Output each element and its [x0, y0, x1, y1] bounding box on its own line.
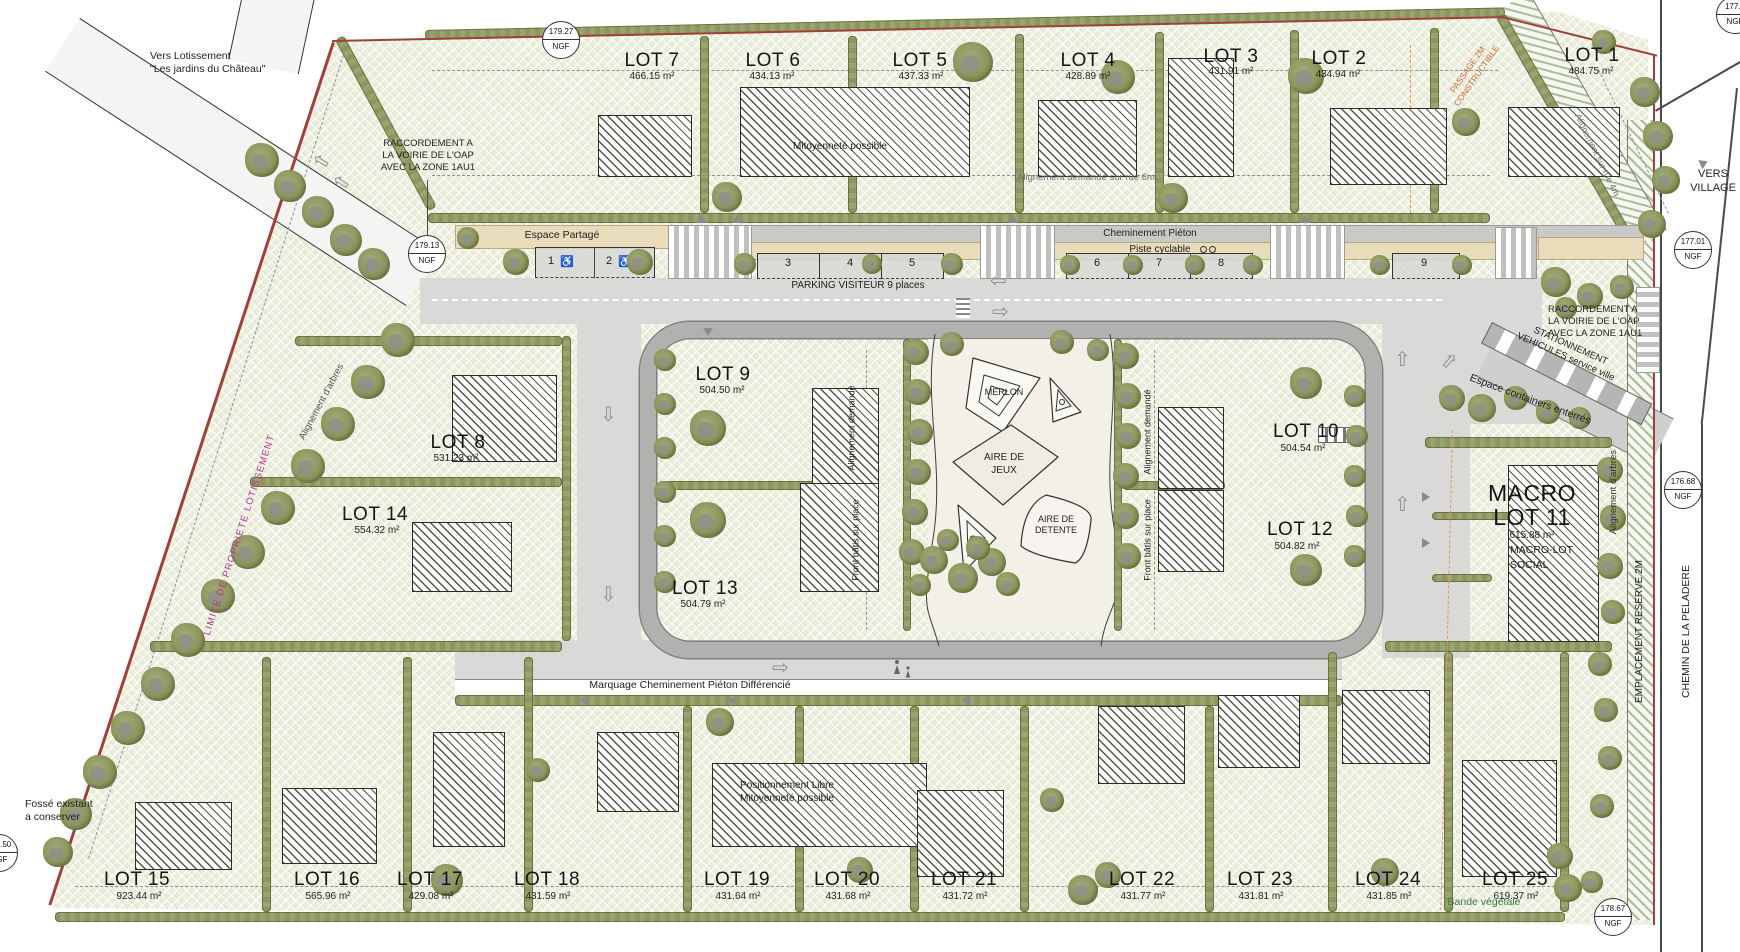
lot-label: LOT 1 — [1565, 45, 1620, 67]
tree-icon — [1050, 330, 1074, 354]
tree-icon — [330, 224, 362, 256]
building-lot21 — [917, 790, 1004, 877]
fosse-label: Fossé existant a conserver — [25, 798, 93, 824]
lot-label: LOT 18 — [514, 869, 580, 891]
hedge — [562, 336, 571, 641]
raccordement-right-label: RACCORDEMENT A LA VOIRIE DE L'OAP AVEC L… — [1548, 304, 1642, 340]
lot-area: 466.15 m² — [629, 71, 674, 82]
tree-icon — [1652, 166, 1680, 194]
tree-icon — [941, 253, 963, 275]
tree-icon — [358, 248, 390, 280]
building-lot15 — [135, 802, 232, 870]
tree-icon — [1468, 394, 1496, 422]
building-lot16 — [282, 788, 377, 864]
lot-area: 431.68 m² — [825, 891, 870, 902]
emplacement-reserve-label: EMPLACEMENT RESERVE 2M — [1634, 560, 1645, 703]
lot-label: LOT 2 — [1312, 48, 1367, 70]
site-plan: LOT 7 466.15 m² LOT 6 434.13 m² LOT 5 43… — [0, 0, 1740, 952]
bande-vegetale-label: Bande végétale — [1448, 896, 1521, 909]
flow-arrow-icon — [1422, 492, 1430, 502]
lot-label: LOT 10 — [1273, 421, 1339, 443]
tree-icon — [1643, 121, 1673, 151]
tree-icon — [1113, 503, 1139, 529]
lot-area: 431.59 m² — [525, 891, 570, 902]
ngf-value: 178.67 — [1595, 899, 1631, 917]
pedestrian-icon — [894, 660, 900, 674]
lot-label: LOT 17 — [397, 869, 463, 891]
lot-label: LOT 3 — [1204, 46, 1259, 68]
shared-space-label: Espace Partagé — [525, 229, 600, 242]
aire-detente-line2: DETENTE — [1035, 525, 1077, 535]
tree-icon — [1087, 339, 1109, 361]
tree-icon — [907, 419, 933, 445]
bay-number: 9 — [1421, 257, 1427, 269]
lot-label: LOT 20 — [814, 869, 880, 891]
ngf-value: 177.01 — [1675, 232, 1711, 250]
pedestrian-path-label: Cheminement Piéton — [1103, 228, 1196, 241]
tree-icon — [690, 410, 726, 446]
lot-area: 431.64 m² — [715, 891, 760, 902]
tree-icon — [940, 332, 964, 356]
ngf-value: 181.50 — [0, 835, 17, 853]
tree-icon — [321, 407, 355, 441]
aire-detente-line1: AIRE DE — [1038, 514, 1074, 524]
bay-number: 7 — [1156, 257, 1162, 269]
raccordement-line2: LA VOIRIE DE L'OAP — [1548, 316, 1640, 327]
crossing-arrow-icon — [962, 698, 972, 706]
lot-area: 484.75 m² — [1568, 66, 1613, 77]
wheelchair-icon: ♿ — [560, 255, 574, 268]
ngf-unit: NGF — [1665, 490, 1701, 501]
lot-label: LOT 12 — [1267, 519, 1333, 541]
bay-number: 6 — [1094, 257, 1100, 269]
direction-arrow-icon: ⇩ — [600, 585, 617, 605]
direction-arrow-icon: ⇨ — [992, 302, 1009, 322]
lot-area: 504.82 m² — [1274, 541, 1319, 552]
lot-area: 431.85 m² — [1366, 891, 1411, 902]
macro-lot-label: MACRO — [1488, 480, 1576, 507]
hedge — [55, 912, 1565, 922]
hedge — [1015, 34, 1024, 213]
tree-icon — [1158, 183, 1188, 213]
tree-icon — [274, 170, 306, 202]
vers-lotissement-line2: "Les jardins du Château" — [150, 63, 265, 75]
tree-icon — [1588, 652, 1612, 676]
lot-area: 437.33 m² — [898, 71, 943, 82]
lot-label: LOT 5 — [893, 50, 948, 72]
macro-lot-label: LOT 11 — [1493, 504, 1571, 531]
main-road-centerline — [432, 299, 1442, 301]
tree-icon — [1243, 255, 1263, 275]
crossing-arrow-icon — [580, 698, 590, 706]
hedge — [700, 36, 709, 213]
tree-icon — [903, 339, 929, 365]
tree-icon — [862, 254, 882, 274]
hedge — [1425, 437, 1612, 448]
tree-icon — [171, 623, 205, 657]
tree-icon — [654, 393, 676, 415]
tree-icon — [381, 323, 415, 357]
building-lot12 — [1158, 490, 1224, 572]
lot-label: LOT 16 — [294, 869, 360, 891]
building-lot2 — [1330, 108, 1447, 185]
tree-icon — [1439, 385, 1465, 411]
aire-detente-label: AIRE DE DETENTE — [1035, 514, 1077, 537]
raccordement-line3: AVEC LA ZONE 1AU1 — [381, 162, 475, 173]
tree-icon — [1060, 255, 1080, 275]
lot-area: 431.91 m² — [1208, 66, 1253, 77]
bicycle-icon — [1200, 244, 1216, 253]
hedge — [262, 657, 271, 912]
lot-area: 923.44 m² — [116, 891, 161, 902]
tree-icon — [1185, 255, 1205, 275]
tree-icon — [1581, 871, 1603, 893]
ngf-value: 179.27 — [543, 22, 579, 40]
tree-icon — [1590, 794, 1614, 818]
alignement-demande-lot9: Alignement demandé — [846, 385, 857, 470]
crossing-arrow-icon — [1300, 215, 1310, 223]
left-loop-road — [577, 324, 641, 658]
fosse-line2: a conserver — [25, 811, 80, 823]
road-crossing-marks — [956, 298, 970, 318]
tree-icon — [1040, 788, 1064, 812]
tree-icon — [734, 253, 756, 275]
marquage-label: Marquage Cheminement Piéton Différencié — [589, 679, 790, 692]
bay-number: 3 — [785, 257, 791, 269]
ngf-value: 176.68 — [1665, 472, 1701, 490]
lot-area: 434.13 m² — [749, 71, 794, 82]
aire-jeux-label: AIRE DE JEUX — [984, 452, 1024, 477]
lot-label: LOT 14 — [342, 504, 408, 526]
ngf-unit: NGF — [409, 254, 445, 265]
tree-icon — [1344, 545, 1366, 567]
alignment-dashed-lot10 — [1154, 350, 1155, 630]
direction-arrow-icon: ⇦ — [990, 271, 1007, 291]
raccordement-leader-line — [427, 180, 428, 236]
tree-icon — [902, 499, 928, 525]
front-batis-lot13: Front bâtis sur place — [850, 499, 861, 581]
tree-icon — [1597, 553, 1623, 579]
lot-label: LOT 7 — [625, 50, 680, 72]
tree-icon — [905, 379, 931, 405]
tree-icon — [948, 563, 978, 593]
lot-label: LOT 24 — [1355, 869, 1421, 891]
ngf-unit: NGF — [543, 40, 579, 51]
lot-label: LOT 6 — [746, 50, 801, 72]
tree-icon — [1115, 543, 1141, 569]
raccordement-left-label: RACCORDEMENT A LA VOIRIE DE L'OAP AVEC L… — [381, 138, 475, 174]
lot-label: LOT 23 — [1227, 869, 1293, 891]
positionnement-line2: Mitoyenneté possible — [740, 793, 834, 804]
hedge — [1560, 652, 1569, 912]
tree-icon — [1115, 383, 1141, 409]
building-lot13 — [800, 483, 879, 592]
visitor-parking-label: PARKING VISITEUR 9 places — [791, 280, 924, 293]
hedge — [1385, 641, 1612, 652]
alignement-demande-lot10: Alignement demandé — [1142, 389, 1153, 474]
lot-area: 504.79 m² — [680, 599, 725, 610]
tree-icon — [1115, 423, 1141, 449]
ngf-marker: 177.01 NGF — [1674, 231, 1712, 269]
tree-icon — [627, 249, 653, 275]
bay-number: 1 — [548, 255, 554, 267]
lot-label: LOT 25 — [1482, 869, 1548, 891]
tree-icon — [1594, 698, 1618, 722]
direction-arrow-icon: ⇩ — [600, 405, 617, 425]
lot-area: 565.96 m² — [305, 891, 350, 902]
raccordement-line1: RACCORDEMENT A — [383, 138, 473, 149]
front-batis-lot12: Front bâtis sur place — [1142, 499, 1153, 581]
ngf-unit: NGF — [1675, 250, 1711, 261]
building-lot14 — [412, 522, 512, 592]
building-lot7 — [598, 115, 692, 177]
vers-village-line1: VERS — [1698, 168, 1728, 180]
tree-icon — [141, 667, 175, 701]
lot-label: LOT 4 — [1061, 50, 1116, 72]
crosswalk — [1495, 227, 1537, 279]
main-road — [420, 278, 1520, 324]
tree-icon — [1346, 425, 1368, 447]
tree-icon — [1541, 267, 1571, 297]
chemin-inner-line — [1701, 424, 1703, 952]
crossing-arrow-icon — [697, 215, 707, 223]
bay-number: 2 — [606, 255, 612, 267]
lot-label: LOT 15 — [104, 869, 170, 891]
merlon-label: MERLON — [985, 387, 1024, 398]
tree-icon — [654, 481, 676, 503]
tree-icon — [291, 449, 325, 483]
tree-icon — [1610, 275, 1634, 299]
lot-area: 504.54 m² — [1280, 443, 1325, 454]
lot-area: 504.50 m² — [699, 385, 744, 396]
tree-icon — [1344, 465, 1366, 487]
ngf-value: 177.3 — [1717, 0, 1740, 15]
tree-icon — [1630, 77, 1660, 107]
chemin-peladere-label: CHEMIN DE LA PELADERE — [1680, 565, 1692, 698]
alignement-arbres-right-label: Alignement d'arbres — [1608, 450, 1619, 534]
lot-area: 428.89 m² — [1065, 71, 1110, 82]
building-lot25 — [1462, 760, 1557, 877]
tree-icon — [1068, 875, 1098, 905]
tree-icon — [1290, 367, 1322, 399]
building-positionnement — [712, 763, 927, 847]
macro-lot-area: 615.88 m² — [1509, 530, 1554, 541]
tree-icon — [1346, 505, 1368, 527]
tree-icon — [905, 459, 931, 485]
lot-area: 431.81 m² — [1238, 891, 1283, 902]
tree-icon — [1344, 385, 1366, 407]
lot-area: 554.32 m² — [354, 525, 399, 536]
crossing-arrow-icon — [728, 698, 738, 706]
lot-label: LOT 13 — [672, 578, 738, 600]
building-lot22 — [1098, 706, 1185, 784]
tree-icon — [351, 365, 385, 399]
raccordement-line1: RACCORDEMENT A — [1548, 304, 1638, 315]
tree-icon — [83, 755, 117, 789]
direction-arrow-icon: ⇧ — [1394, 350, 1411, 370]
aire-jeux-line2: JEUX — [991, 465, 1017, 476]
tree-icon — [1123, 255, 1143, 275]
lot-label: LOT 19 — [704, 869, 770, 891]
ngf-marker: 181.50 NGF — [0, 834, 18, 872]
cycle-path-label: Piste cyclable — [1129, 244, 1190, 257]
lot-area: 434.94 m² — [1315, 69, 1360, 80]
ngf-value: 179.13 — [409, 236, 445, 254]
crossing-arrow-icon — [1008, 215, 1018, 223]
tree-icon — [654, 525, 676, 547]
tree-icon — [1598, 746, 1622, 770]
tree-icon — [245, 143, 279, 177]
vers-lotissement-line1: Vers Lotissement — [150, 50, 231, 62]
tree-icon — [457, 227, 479, 249]
tree-icon — [690, 502, 726, 538]
tree-icon — [1601, 600, 1625, 624]
building-lot24 — [1342, 690, 1430, 764]
right-loop-road — [1382, 324, 1470, 658]
tree-icon — [302, 196, 334, 228]
lot-label: LOT 8 — [431, 432, 486, 454]
crossing-arrow-icon — [732, 215, 742, 223]
tree-icon — [712, 182, 742, 212]
hedge — [1020, 706, 1029, 912]
lot-label: LOT 21 — [931, 869, 997, 891]
tree-icon — [1452, 255, 1472, 275]
lot-label: LOT 9 — [696, 364, 751, 386]
tree-icon — [111, 711, 145, 745]
tree-icon — [1290, 554, 1322, 586]
hedge — [1432, 574, 1492, 582]
hedge — [658, 481, 820, 490]
bay-number: 8 — [1218, 257, 1224, 269]
tree-icon — [706, 708, 734, 736]
ngf-marker: 176.68 NGF — [1664, 471, 1702, 509]
building-lot17 — [433, 732, 505, 847]
ngf-unit: NGF — [1595, 917, 1631, 928]
cycle-path-band-right — [1538, 237, 1644, 260]
ngf-unit: NGF — [0, 853, 17, 864]
tree-icon — [1370, 255, 1390, 275]
tree-icon — [654, 349, 676, 371]
pedestrian-icon — [906, 666, 911, 677]
tree-icon — [261, 491, 295, 525]
aire-jeux-line1: AIRE DE — [984, 452, 1024, 463]
hedge — [428, 213, 1490, 223]
macro-lot-social: MACRO-LOT — [1510, 544, 1573, 557]
crosswalk — [1270, 225, 1345, 279]
tree-icon — [654, 437, 676, 459]
lot-area: 429.08 m² — [408, 891, 453, 902]
building-lot23 — [1218, 695, 1300, 768]
hedge — [1290, 30, 1299, 213]
macro-lot-social: SOCIAL — [1510, 559, 1549, 572]
tree-icon — [1547, 843, 1573, 869]
direction-arrow-icon: ⇧ — [1394, 495, 1411, 515]
hedge — [295, 336, 562, 346]
building-lot10 — [1158, 407, 1224, 489]
raccordement-line2: LA VOIRIE DE L'OAP — [382, 150, 474, 161]
fosse-line1: Fossé existant — [25, 798, 93, 810]
building-lot18 — [597, 732, 679, 812]
alignment-6m-label: Alignement demandé sur rue 6m — [1017, 172, 1155, 184]
tree-icon — [526, 758, 550, 782]
positionnement-label: Positionnement Libre Mitoyenneté possibl… — [740, 780, 834, 805]
lot-area: 431.77 m² — [1120, 891, 1165, 902]
ngf-marker: 179.13 NGF — [408, 235, 446, 273]
lot-label: LOT 22 — [1109, 869, 1175, 891]
flow-arrow-icon — [1422, 538, 1430, 548]
direction-arrow-icon: ⇨ — [772, 658, 789, 678]
tree-icon — [909, 574, 931, 596]
mitoyennete-label: Mitoyenneté possible — [793, 141, 887, 154]
ngf-marker: 179.27 NGF — [542, 21, 580, 59]
tree-icon — [503, 249, 529, 275]
tree-icon — [996, 572, 1020, 596]
hedge — [150, 641, 562, 652]
tree-icon — [1113, 343, 1139, 369]
building-lot6-5 — [740, 87, 970, 177]
lot-area: 531.23 m² — [433, 453, 478, 464]
building-lot4 — [1038, 100, 1137, 177]
ngf-marker: 178.67 NGF — [1594, 898, 1632, 936]
tree-icon — [43, 837, 73, 867]
tree-icon — [953, 42, 993, 82]
park-shapes — [893, 334, 1149, 646]
vers-village-line2: VILLAGE — [1690, 182, 1736, 194]
tree-icon — [1452, 108, 1480, 136]
bay-number: 5 — [909, 257, 915, 269]
hedge — [1328, 652, 1337, 912]
hedge — [683, 706, 692, 912]
positionnement-line1: Positionnement Libre — [740, 780, 834, 791]
hedge — [1205, 706, 1214, 912]
crossing-arrow-icon — [703, 328, 713, 336]
vers-village-label: VERS VILLAGE — [1690, 168, 1736, 196]
vers-lotissement-label: Vers Lotissement "Les jardins du Château… — [150, 50, 265, 76]
tree-icon — [1554, 874, 1582, 902]
tree-icon — [966, 536, 990, 560]
ngf-unit: NGF — [1717, 15, 1740, 26]
tree-icon — [937, 529, 959, 551]
lot-area: 431.72 m² — [942, 891, 987, 902]
tree-icon — [1113, 463, 1139, 489]
bay-number: 4 — [847, 257, 853, 269]
tree-icon — [1638, 210, 1666, 238]
